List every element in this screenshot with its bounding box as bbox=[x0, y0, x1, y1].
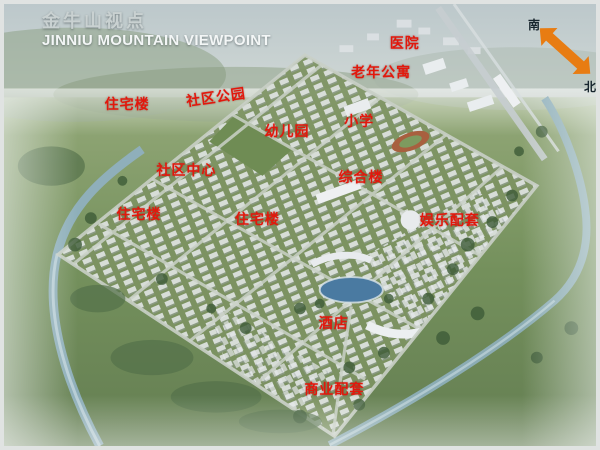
map-label: 酒店 bbox=[319, 313, 349, 333]
viewpoint-slide: 金牛山视点 JINNIU MOUNTAIN VIEWPOINT 南 北 医院老年… bbox=[0, 0, 600, 450]
labels-layer: 医院老年公寓住宅楼社区公园幼儿园小学社区中心综合楼住宅楼住宅楼娱乐配套酒店商业配… bbox=[4, 4, 596, 446]
map-label: 小学 bbox=[344, 111, 374, 131]
map-label: 商业配套 bbox=[304, 379, 364, 399]
map-label: 住宅楼 bbox=[235, 209, 280, 229]
map-label: 社区中心 bbox=[156, 160, 216, 180]
map-label: 住宅楼 bbox=[116, 204, 161, 224]
map-label: 综合楼 bbox=[338, 167, 383, 187]
map-label: 住宅楼 bbox=[105, 94, 150, 114]
map-label: 幼儿园 bbox=[264, 121, 309, 141]
map-label: 医院 bbox=[390, 33, 420, 53]
map-label: 娱乐配套 bbox=[420, 210, 480, 230]
map-label: 社区公园 bbox=[185, 83, 247, 111]
map-label: 老年公寓 bbox=[351, 62, 411, 82]
